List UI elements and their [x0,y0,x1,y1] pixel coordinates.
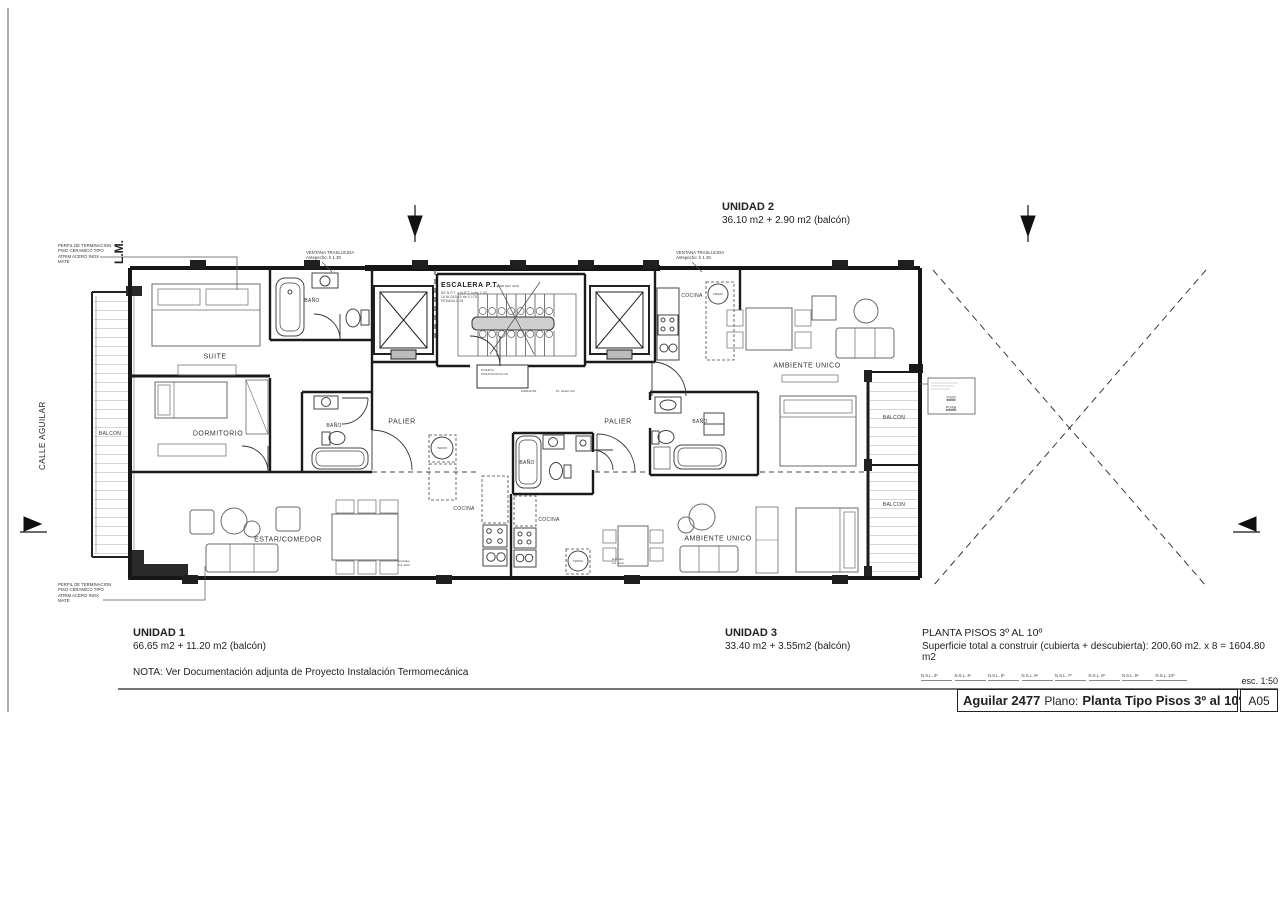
room-label-bano-3: BAÑO [519,460,534,466]
nsl-label: N.S.L. 3º [921,673,952,681]
room-label-balcon-left: BALCON [99,431,121,437]
room-label-cocina-u1: COCINA [453,506,474,512]
room-label-cocina-u2: COCINA [681,293,702,299]
room-label-balcon-right-2: BALCON [883,502,905,508]
electrical-panel-label: PL. ELEC./LD [556,389,575,393]
termo-label-3: TERMO [713,292,723,296]
unit3-name: UNIDAD 3 [725,627,777,639]
scale-label: esc. 1:50 [1232,676,1278,686]
stair-detail-ref: (VER DET. 02/3) [497,284,519,288]
nsl-label: N.S.L. 7º [1055,673,1086,681]
room-label-palier-2: PALIER [604,419,631,426]
summary-detail: Superficie total a construir (cubierta +… [922,641,1280,663]
unit3-area: 33.40 m2 + 3.55m2 (balcón) [725,641,850,652]
termo-label-2: TERMO [573,559,583,563]
room-label-bano-1: BAÑO [304,298,319,304]
stair-title: ESCALERA P.T. [441,282,499,289]
plano-label: Plano: [1044,694,1078,708]
room-label-bano-4: BAÑO [692,419,707,425]
street-name-label: CALLE AGUILAR [38,401,47,470]
nsl-label: N.S.L. 9º [1122,673,1153,681]
unit2-name: UNIDAD 2 [722,201,774,213]
enchape-note-2: Enchape ind. alum. [612,558,625,566]
finish-note-bottom: PERFIL DE TERMINACION PISO CERAMICO TIPO… [58,582,130,604]
unit2-area: 36.10 m2 + 2.90 m2 (balcón) [722,215,850,226]
nsl-label: N.S.L. 4º [955,673,986,681]
balcony-right [864,370,920,578]
enchape-note-1: Enchape ind. alum. [398,560,411,568]
nsl-label: N.S.L. 8º [1089,673,1120,681]
v100-label: V100 [946,395,955,400]
drawing-sheet: L.M. CALLE AGUILAR PERFIL DE TERMINACION… [0,0,1280,905]
pressurized-door-label: PUERTA PRESURIZACION [481,369,508,377]
room-label-bano-2: BAÑO [326,423,341,429]
unit1-area: 66.65 m2 + 11.20 m2 (balcón) [133,641,266,652]
hidrante-label: HIDRANTE [521,389,536,393]
nsl-label: N.S.L. 6º [1022,673,1053,681]
title-block: Aguilar 2477 Plano: Planta Tipo Pisos 3º… [957,689,1238,712]
finish-note-top: PERFIL DE TERMINACION PISO CERAMICO TIPO… [58,243,130,265]
window-note-left: VENTANA TRASLUCIDA Antepecho: h 1.30 [306,250,354,261]
stair-specs: DE N.P.T. a N.P.T. sube 2.40 16 ALZADAS … [441,291,487,304]
room-label-palier-1: PALIER [388,419,415,426]
window-note-right: VENTANA TRASLUCIDA Antepecho: h 1.30 [676,250,724,261]
section-markers [20,205,1260,532]
room-label-ambiente-unico-u3: AMBIENTE UNICO [684,536,751,543]
room-label-suite: SUITE [203,354,226,361]
project-name: Aguilar 2477 [963,693,1040,708]
nsl-label: N.S.L. 10º [1156,673,1187,681]
summary-title: PLANTA PISOS 3º AL 10º [922,627,1042,639]
room-label-ambiente-unico-u2: AMBIENTE UNICO [773,363,840,370]
room-label-dormitorio: DORMITORIO [193,431,243,438]
portal-label: Portal [946,405,956,410]
room-label-balcon-right-1: BALCON [883,415,905,421]
plano-title: Planta Tipo Pisos 3º al 10º [1082,693,1243,708]
floor-plan-drawing [0,0,1280,905]
unit1-name: UNIDAD 1 [133,627,185,639]
thermo-note: NOTA: Ver Documentación adjunta de Proye… [133,667,468,678]
sheet-code: A05 [1240,689,1278,712]
elevator-shaft-left [374,286,433,359]
room-label-estar-comedor: ESTAR/COMEDOR [254,537,322,544]
exterior-walls [130,268,920,578]
sheet-frame [8,8,1278,712]
elevator-shaft-right [590,286,649,359]
leader-lines [100,257,702,600]
floor-level-labels: N.S.L. 3º N.S.L. 4º N.S.L. 5º N.S.L. 6º … [921,673,1189,681]
lot-cross-lines [933,270,1206,586]
room-label-cocina-u3: COCINA [538,517,559,523]
nsl-label: N.S.L. 5º [988,673,1019,681]
termo-label-1: TERMO [437,446,447,450]
